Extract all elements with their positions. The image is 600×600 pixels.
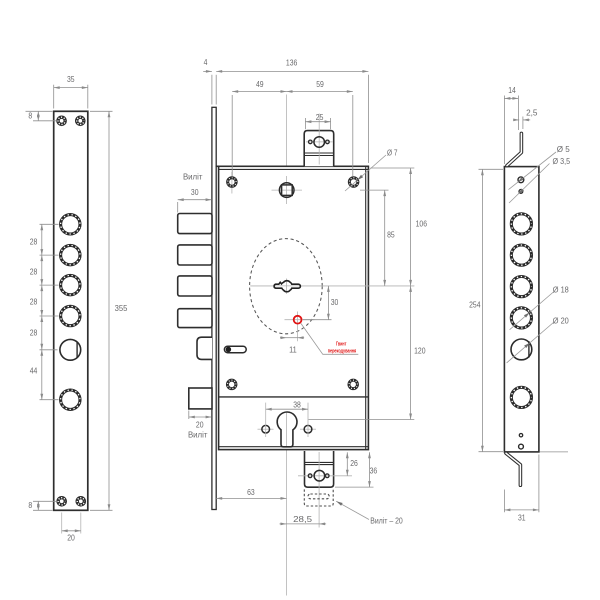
svg-text:Гвинт: Гвинт bbox=[336, 341, 347, 347]
svg-text:106: 106 bbox=[416, 219, 428, 228]
svg-text:136: 136 bbox=[286, 59, 298, 68]
svg-text:30: 30 bbox=[331, 298, 339, 307]
svg-text:120: 120 bbox=[414, 347, 426, 356]
svg-text:Виліт – 20: Виліт – 20 bbox=[370, 517, 403, 526]
svg-text:355: 355 bbox=[115, 304, 128, 313]
svg-text:44: 44 bbox=[30, 367, 38, 376]
svg-text:11: 11 bbox=[289, 345, 297, 354]
svg-text:Виліт: Виліт bbox=[183, 173, 203, 182]
svg-text:Ø 7: Ø 7 bbox=[387, 149, 398, 158]
svg-text:4: 4 bbox=[204, 58, 208, 67]
svg-text:31: 31 bbox=[518, 514, 526, 523]
svg-text:49: 49 bbox=[256, 80, 264, 89]
svg-text:28: 28 bbox=[30, 329, 38, 338]
svg-text:28: 28 bbox=[30, 238, 38, 247]
svg-text:85: 85 bbox=[387, 231, 395, 240]
svg-text:перекодування: перекодування bbox=[328, 348, 357, 354]
svg-text:63: 63 bbox=[247, 488, 255, 497]
svg-text:28: 28 bbox=[30, 268, 38, 277]
svg-text:26: 26 bbox=[350, 459, 358, 468]
svg-text:254: 254 bbox=[469, 301, 481, 310]
svg-text:Ø 3,5: Ø 3,5 bbox=[553, 157, 571, 166]
svg-text:59: 59 bbox=[316, 80, 324, 89]
svg-text:Ø 18: Ø 18 bbox=[553, 286, 569, 295]
svg-text:2,5: 2,5 bbox=[526, 109, 538, 118]
svg-text:28: 28 bbox=[30, 298, 38, 307]
svg-text:20: 20 bbox=[196, 420, 204, 429]
svg-text:8: 8 bbox=[28, 501, 32, 510]
svg-text:20: 20 bbox=[67, 533, 75, 542]
svg-text:38: 38 bbox=[293, 400, 301, 409]
svg-text:25: 25 bbox=[316, 113, 324, 122]
svg-text:Виліт: Виліт bbox=[188, 430, 208, 439]
svg-text:8: 8 bbox=[28, 111, 32, 120]
svg-text:30: 30 bbox=[191, 188, 199, 197]
svg-text:Ø 5: Ø 5 bbox=[557, 145, 570, 154]
svg-text:28,5: 28,5 bbox=[293, 515, 313, 524]
svg-text:36: 36 bbox=[370, 467, 378, 476]
svg-text:35: 35 bbox=[67, 75, 75, 84]
svg-text:14: 14 bbox=[508, 86, 516, 95]
svg-text:Ø 20: Ø 20 bbox=[553, 316, 569, 325]
